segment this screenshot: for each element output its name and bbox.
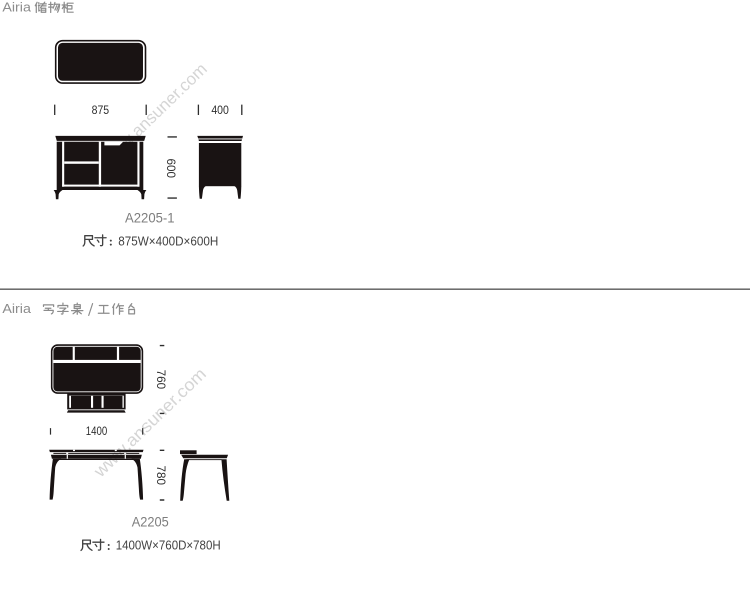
- svg-text:760: 760: [154, 370, 168, 390]
- svg-text:400: 400: [211, 103, 229, 117]
- svg-text:1400: 1400: [86, 424, 108, 438]
- svg-text:Airia: Airia: [2, 301, 31, 316]
- svg-text:600: 600: [164, 159, 178, 179]
- svg-text:780: 780: [154, 465, 168, 485]
- svg-text:A2205-1: A2205-1: [125, 211, 175, 226]
- svg-text:A2205: A2205: [132, 515, 169, 530]
- svg-text:Airia: Airia: [2, 0, 31, 15]
- svg-text:875W×400D×600H: 875W×400D×600H: [118, 233, 218, 248]
- svg-text:1400W×760D×780H: 1400W×760D×780H: [116, 538, 221, 553]
- svg-text:875: 875: [92, 103, 110, 117]
